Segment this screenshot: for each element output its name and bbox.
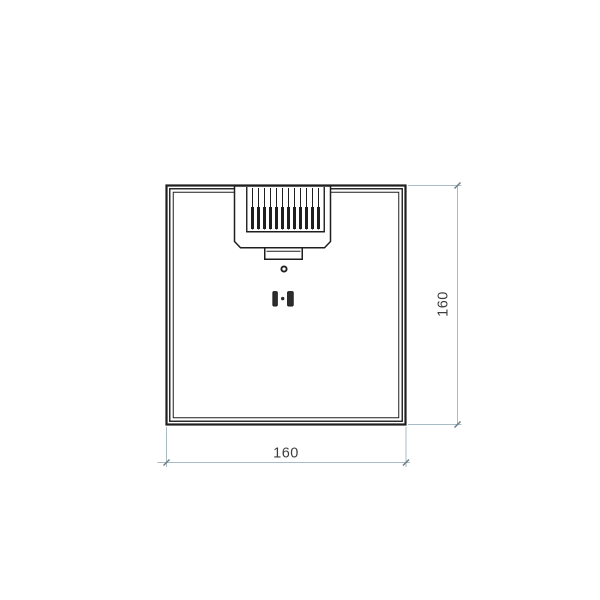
pilot-hole	[281, 266, 286, 271]
drawing-canvas: 160 160	[0, 0, 600, 600]
terminal-slot-left	[273, 292, 278, 307]
height-dimension-label: 160	[436, 291, 452, 317]
terminal-center-dot	[281, 297, 284, 300]
connector-housing	[235, 186, 331, 259]
width-dimension-label: 160	[273, 446, 299, 462]
technical-drawing: 160 160	[0, 0, 600, 600]
terminal-slot-right	[288, 292, 294, 307]
connector-tab	[265, 248, 303, 260]
terminal-slots	[273, 292, 294, 307]
